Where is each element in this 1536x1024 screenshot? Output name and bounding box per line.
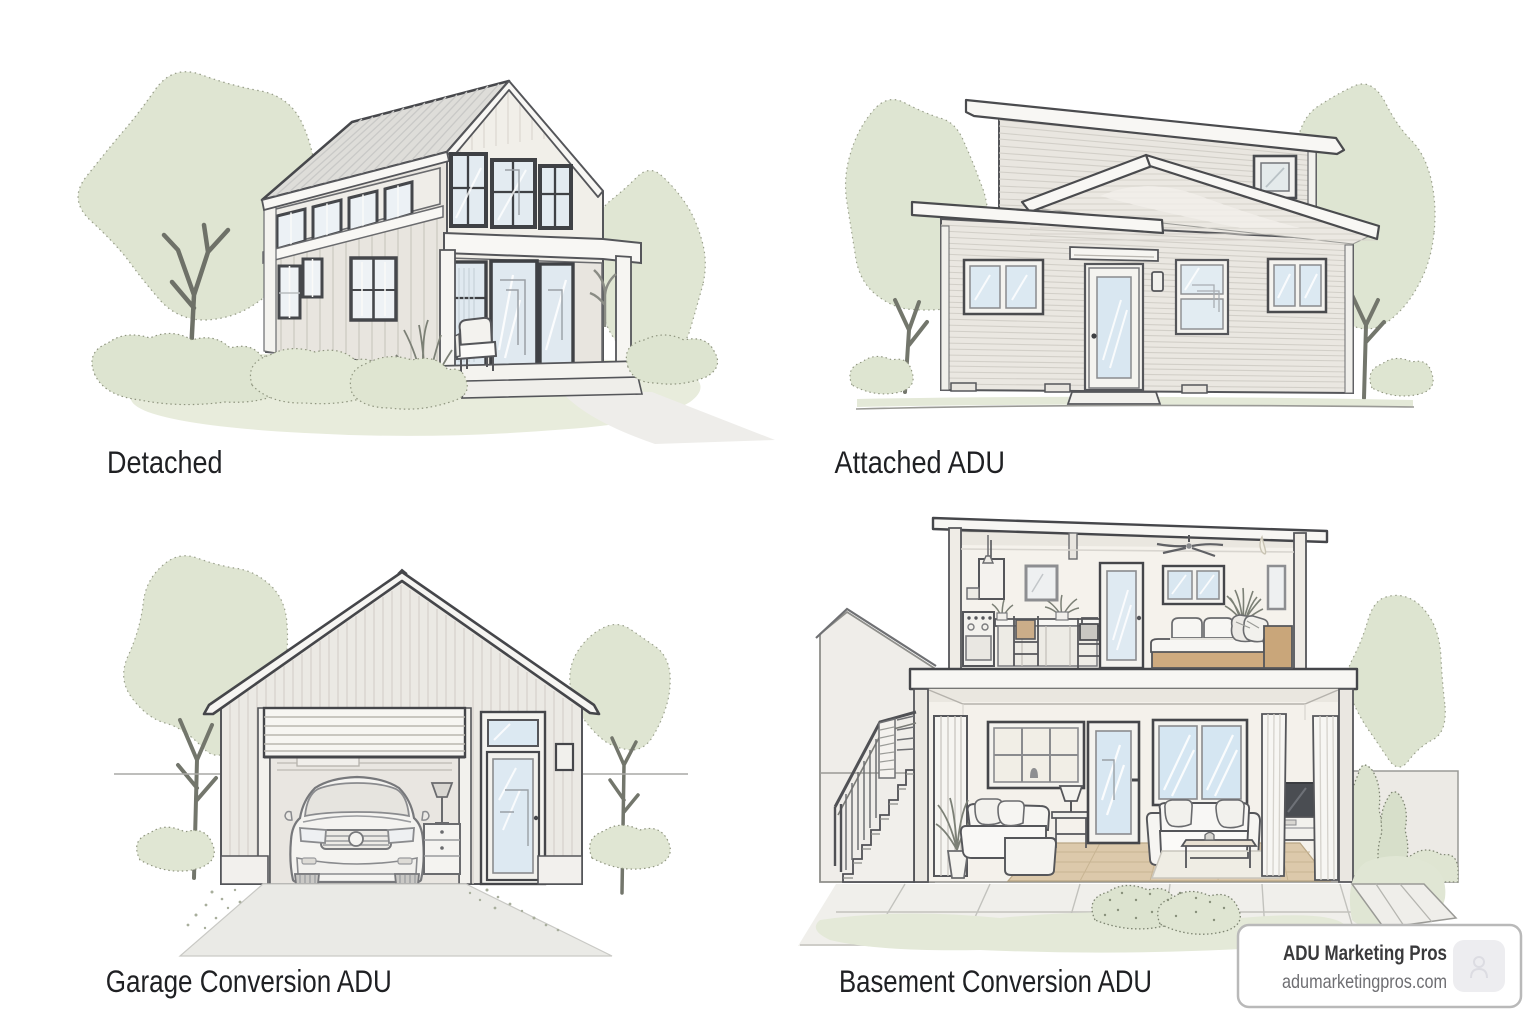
svg-text:adumarketingpros.com: adumarketingpros.com xyxy=(1282,971,1447,993)
svg-text:Attached ADU: Attached ADU xyxy=(835,444,1006,480)
svg-text:Detached: Detached xyxy=(107,444,223,480)
svg-text:ADU Marketing Pros: ADU Marketing Pros xyxy=(1283,942,1447,965)
svg-text:Basement Conversion ADU: Basement Conversion ADU xyxy=(839,963,1152,999)
svg-text:Garage Conversion ADU: Garage Conversion ADU xyxy=(106,963,392,999)
